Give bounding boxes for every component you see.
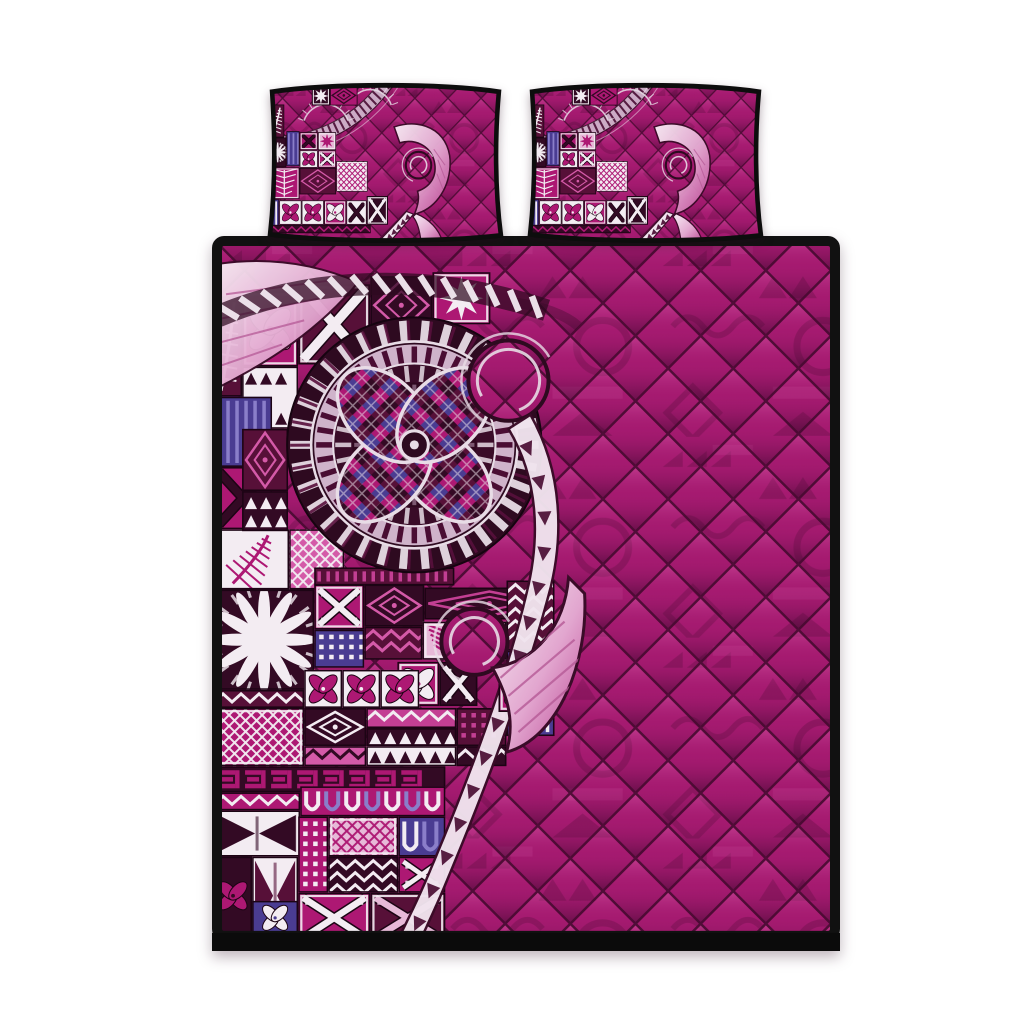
- patch-block-cross: [560, 132, 578, 150]
- patch-block-diamonds: [364, 584, 424, 626]
- patch-block-flower4: [252, 901, 298, 935]
- patch-block-cross: [627, 196, 648, 225]
- patch-block-flower4: [560, 150, 578, 168]
- bottom-binding-band: [212, 933, 840, 951]
- patch-block-chev: [269, 225, 374, 234]
- bedding-set-product-photo: [0, 0, 1024, 1024]
- patch-block-sunburst: [268, 137, 287, 167]
- patch-block-cross: [318, 150, 336, 168]
- patch-block-flower4: [279, 200, 301, 224]
- quilt: [212, 236, 840, 952]
- patch-block-cross: [367, 196, 388, 225]
- patch-block-cross: [314, 584, 364, 629]
- patch-block-flower4: [562, 200, 584, 224]
- patch-block-sunburst: [212, 584, 319, 694]
- patch-block-cross: [578, 150, 596, 168]
- patch-block-chev: [366, 708, 456, 728]
- patch-block-arrows: [366, 746, 456, 766]
- patch-block-flower4: [380, 670, 419, 708]
- patch-block-flower4: [304, 670, 342, 708]
- pillow-sham-right: [526, 80, 765, 245]
- patch-block-arrows: [366, 728, 456, 746]
- patch-block-flower4: [539, 200, 561, 224]
- patch-block-sunburst: [528, 137, 547, 167]
- patch-block-flower4: [584, 200, 606, 224]
- patch-block-flower4: [342, 670, 380, 708]
- quilt-art: [212, 236, 840, 952]
- patch-block-dots: [314, 630, 364, 668]
- patch-block-arrows: [242, 491, 288, 531]
- patch-block-star8: [578, 132, 596, 150]
- patch-block-diamonds: [560, 168, 597, 195]
- patch-block-flower4: [300, 150, 318, 168]
- patch-block-bars: [546, 131, 559, 166]
- patch-block-flower4: [324, 200, 346, 224]
- patch-block-diamonds: [242, 429, 288, 491]
- patch-block-chev: [214, 792, 304, 810]
- patch-block-diamonds: [300, 168, 337, 195]
- patch-block-cross: [606, 200, 626, 224]
- patch-block-chev: [214, 690, 304, 708]
- patch-block-chev: [529, 225, 634, 234]
- patch-block-fern: [214, 529, 289, 594]
- patch-block-flower4: [302, 200, 324, 224]
- patch-block-bars: [286, 131, 299, 166]
- patch-block-dots: [298, 816, 328, 892]
- patch-block-chev: [364, 627, 427, 660]
- patch-block-star8: [318, 132, 336, 150]
- patch-block-chev: [328, 857, 400, 893]
- patch-block-cross: [300, 132, 318, 150]
- pillow-art: [526, 80, 765, 245]
- pillow-sham-left: [266, 80, 505, 245]
- patch-block-chev: [304, 746, 367, 766]
- patch-block-bow: [214, 810, 300, 856]
- patch-block-diamonds: [304, 708, 366, 746]
- pillow-art: [266, 80, 505, 245]
- patch-block-urow: [300, 786, 445, 816]
- patch-block-cross: [346, 200, 366, 224]
